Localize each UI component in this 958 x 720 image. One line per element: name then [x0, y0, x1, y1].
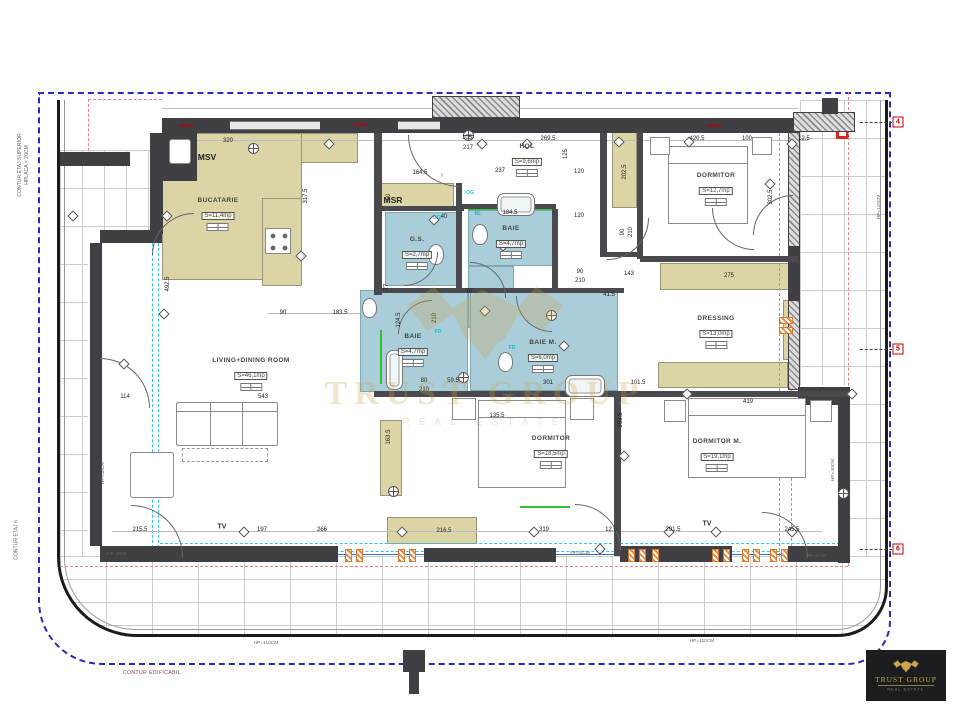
dimension-label: 105 [462, 135, 472, 141]
nightstand [810, 400, 832, 422]
nightstand [570, 398, 594, 420]
dimension-label: 41.5 [603, 292, 615, 298]
code-label: OG [433, 215, 441, 220]
dimension-label: 12.5 [605, 527, 617, 533]
wall-type-label: RE100 [179, 124, 194, 129]
dimension-label: 143 [624, 271, 634, 277]
wall-segment [788, 246, 800, 302]
toilet-icon [472, 224, 488, 245]
dimension-label: 80 [421, 378, 428, 384]
room-label: MSV [198, 152, 216, 162]
room-area: S=46,1mp [234, 372, 268, 380]
code-label: FD [509, 345, 516, 350]
tv-label: TV [703, 521, 712, 528]
height-label: HP=110CM [690, 639, 715, 644]
room-name: DORMITOR M. [693, 438, 742, 445]
dimension-label: 120 [574, 169, 584, 175]
room-name: LIVING+DINING ROOM [212, 357, 289, 364]
height-label: HP=0CM [806, 554, 826, 559]
dimension-label: 164.5 [412, 170, 427, 176]
dimension-label: 101.5 [630, 380, 645, 386]
wall-segment [838, 405, 850, 563]
baluster-hatch [409, 549, 416, 562]
grid-marker-leader [860, 122, 892, 123]
room-area: S=4,7mp [496, 240, 526, 248]
interior-wall [600, 133, 607, 257]
room-finish-grid [500, 251, 522, 259]
room-finish-grid [540, 461, 562, 469]
height-label: HP=110CM [254, 641, 279, 646]
wall-type-label: RE100 [353, 123, 368, 128]
railing-line [160, 543, 612, 544]
dimension-label: 553.5 [618, 412, 624, 427]
baluster-hatch [639, 549, 646, 562]
wall-segment [822, 98, 838, 114]
contour-etaj6-label: CONTUR ETAJ 6 [13, 520, 20, 560]
grid-axis-marker: 6 [893, 544, 904, 555]
dimension-label: 419 [743, 399, 753, 405]
dimension-label: 266 [317, 527, 327, 533]
dimension-label: 245.5 [784, 527, 799, 533]
room-area: S=9,6mp [512, 158, 542, 166]
grid-marker-leader [860, 549, 892, 550]
baluster-hatch [398, 549, 405, 562]
baluster-hatch [779, 317, 793, 324]
contour-edificabil-label: CONTUR EDIFICABIL [123, 670, 181, 675]
room-finish-grid [406, 262, 428, 270]
dimension-label: 237 [495, 168, 505, 174]
stove-icon [265, 228, 291, 254]
dimension-label: 216.5 [436, 528, 451, 534]
room-name: DORMITOR [532, 435, 570, 442]
nightstand [650, 137, 670, 155]
room-name: G.S. [402, 236, 432, 243]
room-area: S=11,4mp [201, 212, 234, 220]
room-area: S=13,0mp [699, 330, 733, 338]
room-area: S=18,5mp [534, 450, 568, 458]
wall-segment [409, 672, 419, 694]
sill-marker [520, 506, 570, 508]
dimension-label: 59.5 [447, 378, 459, 384]
dimension-label: 163.5 [386, 429, 392, 444]
room-area: S=12,7mp [699, 187, 733, 195]
room-area: S=19,1mp [700, 453, 734, 461]
dimension-label: 302.5 [768, 189, 774, 204]
room-finish-grid [706, 464, 728, 472]
room-finish-grid [402, 359, 424, 367]
dimension-label: 135.5 [489, 413, 504, 419]
room-finish-grid [532, 365, 554, 373]
dimension-label: 291.5 [665, 527, 680, 533]
wall-segment [100, 230, 162, 243]
hatched-wall [793, 112, 855, 132]
wall-segment [403, 650, 425, 672]
height-label: HP=0CM [107, 552, 127, 557]
dimension-label: 215.5 [132, 527, 147, 533]
railing-line [620, 543, 845, 544]
baluster-hatch [723, 549, 730, 562]
dimension-label: 210 [419, 387, 429, 393]
room-finish-grid [240, 383, 262, 391]
cabinet-fill [658, 362, 788, 388]
interior-wall [640, 256, 798, 262]
dimension-label: 90 [280, 310, 287, 316]
dimension-label: 275 [724, 273, 734, 279]
nightstand [452, 398, 476, 420]
room-label: LIVING+DINING ROOMS=46,1mp [212, 357, 289, 391]
room-finish-grid [705, 341, 727, 349]
dimension-label: 125 [563, 149, 569, 159]
room-name: BAIE M. [528, 339, 558, 346]
dimension-label: 320 [223, 138, 233, 144]
rug-outline [182, 448, 268, 462]
dimension-label: 420.5 [689, 136, 704, 142]
height-label: HP=0CM [570, 551, 590, 556]
interior-wall [374, 133, 382, 295]
interior-wall [374, 391, 848, 397]
dimension-label: 319 [539, 527, 549, 533]
dimension-label: 210 [628, 227, 634, 237]
nightstand [752, 137, 772, 155]
code-label: OG [466, 190, 474, 195]
room-name: BUCATARIE [198, 197, 239, 204]
trust-group-logo: TRUST GROUP REAL ESTATE [866, 650, 946, 701]
room-name: BAIE [398, 333, 428, 340]
hatched-wall [432, 96, 520, 118]
room-name: BAIE [496, 225, 526, 232]
room-label: DRESSINGS=13,0mp [697, 315, 734, 349]
room-finish-grid [516, 169, 538, 177]
code-label: FD [435, 329, 442, 334]
dimension-label: 317.5 [303, 188, 309, 203]
room-area: S=4,7mp [398, 348, 428, 356]
dimension-label: 197 [257, 527, 267, 533]
height-label: HP=40CM [101, 462, 106, 484]
dimension-label: 70 [466, 289, 473, 295]
handshake-icon [891, 659, 921, 674]
dimension-label: 269.5 [540, 136, 555, 142]
survey-point [546, 310, 557, 321]
height-label: HP=110CM [877, 195, 882, 220]
contour-etaj-superior-label: CONTUR ETAJ SUPERIOR HPLACA = 20CM [17, 133, 31, 196]
dimension-label: 120 [574, 213, 584, 219]
survey-point [388, 486, 399, 497]
dimension-line [190, 140, 808, 141]
survey-point [248, 143, 259, 154]
sofa [176, 402, 278, 446]
room-area: S=6,0mp [528, 354, 558, 362]
room-label: BAIES=4,7mp [398, 333, 428, 367]
baluster-hatch [779, 327, 793, 334]
wall-type-label: RE100 [707, 124, 722, 129]
room-name: HOL [512, 143, 542, 150]
direction-arrow: ↑ [440, 173, 444, 180]
room-label: BAIE M.S=6,0mp [528, 339, 558, 373]
hatched-wall [788, 300, 800, 390]
nightstand [664, 400, 686, 422]
height-label: HP=40CM [831, 459, 836, 481]
survey-point [838, 488, 849, 499]
logo-divider [878, 685, 934, 686]
railing-line [158, 228, 159, 548]
toilet-icon [498, 352, 513, 372]
upper-floor-contour [88, 99, 162, 100]
toilet-icon [362, 298, 377, 318]
wall-segment [150, 133, 163, 234]
dimension-label: 40 [441, 214, 448, 220]
room-name: DORMITOR [697, 172, 735, 179]
room-label: BUCATARIES=11,4mp [198, 197, 239, 231]
dimension-label: 114 [120, 394, 130, 400]
room-label: DORMITORS=12,7mp [697, 172, 735, 206]
dimension-label: 301 [543, 380, 553, 386]
baluster-hatch [356, 549, 363, 562]
window-opening [398, 121, 440, 130]
baluster-hatch [345, 549, 352, 562]
dimension-label: 77 [384, 284, 390, 291]
window-opening [230, 121, 320, 130]
fixture [169, 139, 191, 164]
room-label: MSR [384, 195, 403, 205]
railing-line [152, 228, 153, 548]
dimension-label: 217 [463, 145, 473, 151]
dimension-label: 90 [620, 229, 626, 236]
room-finish-grid [705, 198, 727, 206]
baluster-hatch [712, 549, 719, 562]
fixture [130, 452, 174, 498]
room-label: DORMITORS=18,5mp [532, 435, 570, 469]
dimension-label: 543 [258, 394, 268, 400]
room-name: DRESSING [697, 315, 734, 322]
baluster-hatch [652, 549, 659, 562]
wall-segment [60, 152, 130, 166]
room-area: S=2,7mp [402, 251, 432, 259]
grid-axis-marker: 4 [893, 117, 904, 128]
baluster-hatch [742, 549, 749, 562]
room-label: DORMITOR M.S=19,1mp [693, 438, 742, 472]
dimension-label: 12.5 [798, 136, 810, 142]
dimension-label: 202.5 [622, 164, 628, 179]
dimension-label: 184.5 [502, 210, 517, 216]
dimension-label: 492.5 [165, 276, 171, 291]
logo-title: TRUST GROUP [875, 675, 937, 684]
logo-subtitle: REAL ESTATE [888, 688, 925, 692]
grid-axis-marker: 5 [893, 344, 904, 355]
code-label: BL [475, 211, 482, 216]
dimension-label: 183.5 [332, 310, 347, 316]
upper-floor-contour [60, 566, 848, 567]
baluster-hatch [628, 549, 635, 562]
sill-marker [380, 330, 382, 384]
room-label: BAIES=4,7mp [496, 225, 526, 259]
grid-marker-leader [860, 349, 892, 350]
interior-wall [456, 183, 462, 291]
dimension-label: 210 [432, 313, 438, 323]
interior-wall [552, 209, 558, 291]
survey-point [458, 372, 469, 383]
wall-segment [424, 548, 556, 562]
room-label: HOLS=9,6mp [512, 143, 542, 177]
tv-label: TV [218, 524, 227, 531]
dimension-label: 210 [575, 278, 585, 284]
dimension-label: 90 [577, 269, 584, 275]
bathtub-icon [565, 375, 605, 397]
room-finish-grid [207, 223, 229, 231]
dimension-label: 124.5 [396, 312, 402, 327]
baluster-hatch [753, 549, 760, 562]
dimension-label: 100 [742, 136, 752, 142]
floor-plan-canvas: APT NR. TIP SC = 173.5MP CONTUR EDIFICAB… [0, 0, 958, 720]
room-label: G.S.S=2,7mp [402, 236, 432, 270]
interior-wall [374, 206, 464, 211]
